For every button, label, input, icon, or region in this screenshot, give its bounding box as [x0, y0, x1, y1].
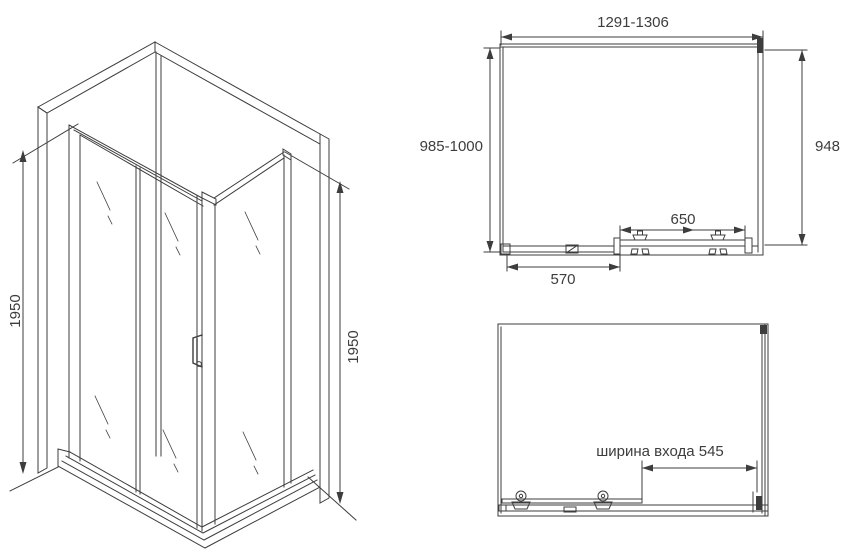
- glass-reflection-marks: [95, 182, 260, 474]
- isometric-view: 1950 1950: [7, 42, 362, 548]
- front-sliding-door: [502, 491, 642, 512]
- front-wall-profile-cap: [760, 325, 767, 334]
- dim-fixed-panel-width: 570: [507, 256, 620, 288]
- door-width-label: 650: [670, 211, 695, 228]
- door-handle-icon: [193, 335, 202, 367]
- height-left-label: 1950: [7, 294, 24, 327]
- technical-drawing-canvas: 1950 1950: [0, 0, 849, 554]
- front-bottom-track: [498, 492, 768, 512]
- shower-tray: [58, 449, 320, 548]
- front-outline: [498, 324, 768, 516]
- dim-width-range: 1291-1306: [501, 14, 763, 45]
- room-walls: [38, 42, 329, 503]
- plan-roller-left: [631, 231, 649, 254]
- front-roller-right: [594, 491, 612, 509]
- drawing-svg: 1950 1950: [0, 0, 849, 554]
- front-roller-left: [512, 491, 530, 509]
- dim-height-right: 1950: [285, 152, 362, 520]
- dim-door-width: 650: [620, 211, 745, 238]
- plan-roller-right: [709, 231, 727, 254]
- plan-view: 1291-1306 985-1000 948 650 570: [420, 14, 840, 288]
- front-view: ширина входа 545: [498, 324, 768, 516]
- side-depth-label: 948: [815, 138, 840, 155]
- dim-height-left: 1950: [7, 124, 78, 491]
- plan-wall-profile-cap: [757, 38, 763, 53]
- entrance-width-label: ширина входа 545: [596, 443, 724, 460]
- fixed-panel-width-label: 570: [550, 271, 575, 288]
- plan-fixed-panel-track: [501, 238, 620, 254]
- plan-outline: [500, 38, 763, 255]
- dim-depth-range: 985-1000: [420, 48, 499, 252]
- glass-side-wall: [214, 149, 291, 487]
- width-range-label: 1291-1306: [597, 14, 669, 31]
- depth-range-label: 985-1000: [420, 138, 483, 155]
- dim-entrance-width: ширина входа 545: [596, 443, 757, 499]
- dim-side-depth: 948: [765, 50, 840, 245]
- height-right-label: 1950: [345, 330, 362, 363]
